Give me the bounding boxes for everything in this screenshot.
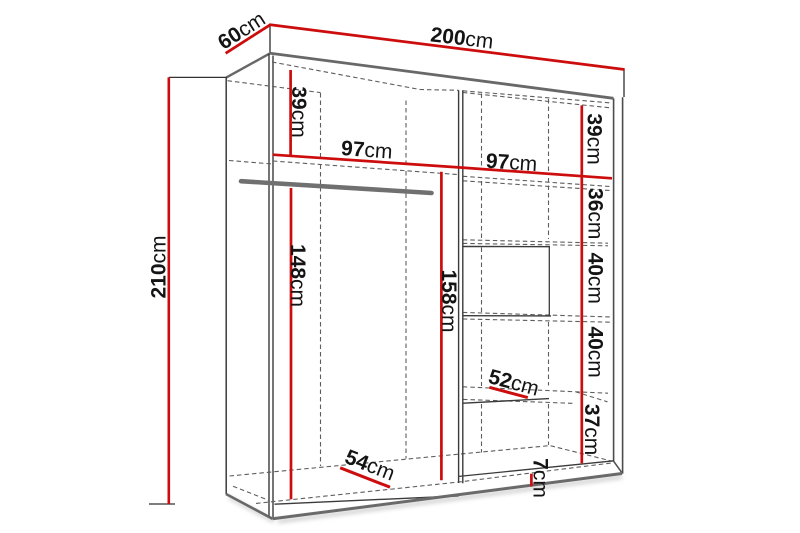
svg-text:39cm: 39cm: [288, 86, 311, 137]
svg-text:97cm: 97cm: [340, 136, 393, 163]
svg-text:7cm: 7cm: [529, 458, 552, 498]
svg-text:40cm: 40cm: [584, 253, 607, 304]
svg-text:40cm: 40cm: [584, 326, 607, 377]
svg-text:158cm: 158cm: [437, 269, 460, 332]
svg-text:36cm: 36cm: [584, 188, 607, 239]
svg-text:97cm: 97cm: [485, 149, 538, 175]
svg-text:39cm: 39cm: [583, 113, 606, 164]
svg-text:37cm: 37cm: [581, 404, 604, 455]
svg-text:210cm: 210cm: [147, 235, 170, 298]
svg-text:148cm: 148cm: [287, 244, 310, 307]
